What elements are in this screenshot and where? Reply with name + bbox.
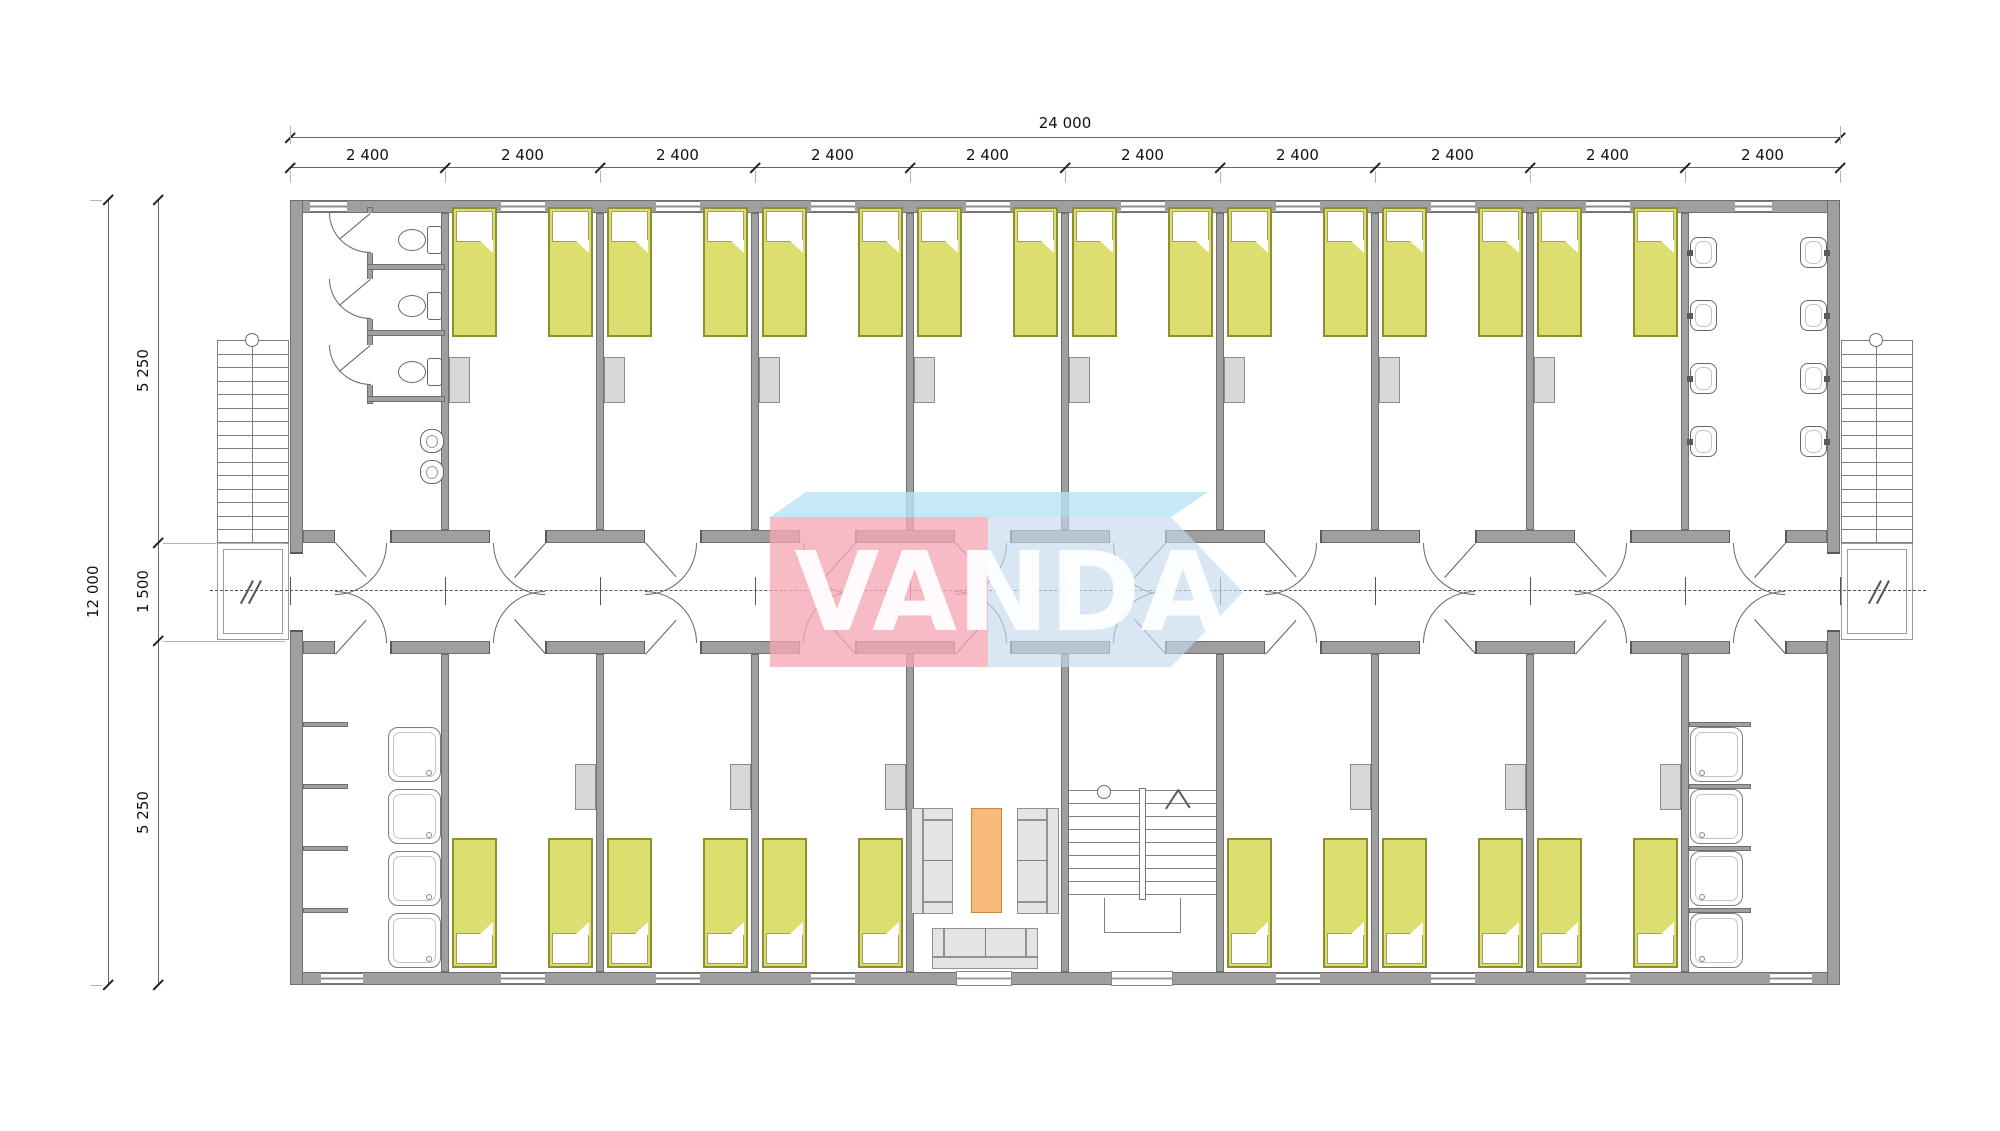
wall-interior-bottom bbox=[1371, 654, 1379, 972]
window bbox=[1735, 201, 1772, 212]
wardrobe bbox=[1224, 357, 1245, 403]
axis-tick bbox=[290, 577, 291, 605]
door-sill bbox=[290, 630, 303, 632]
bed-pillow bbox=[1327, 211, 1364, 242]
walk-line bbox=[1180, 898, 1181, 933]
wall-interior-bottom bbox=[1216, 654, 1224, 972]
sofa-arm bbox=[923, 808, 953, 820]
basin-tap bbox=[1824, 313, 1830, 319]
urinal-inner bbox=[426, 466, 438, 479]
bed-pillow bbox=[1482, 933, 1519, 964]
axis-tick bbox=[1840, 577, 1841, 605]
door-jamb bbox=[1419, 530, 1421, 543]
wall-interior-top bbox=[1061, 213, 1069, 530]
door-jamb bbox=[390, 641, 392, 654]
bed-pillow bbox=[456, 933, 493, 964]
window bbox=[310, 201, 347, 212]
wardrobe bbox=[1350, 764, 1371, 810]
exterior-stair bbox=[1841, 340, 1913, 543]
axis-tick bbox=[600, 577, 601, 605]
stair-step bbox=[218, 448, 288, 449]
dim-line bbox=[108, 200, 109, 985]
bed-pillow bbox=[766, 933, 803, 964]
wall-interior-top bbox=[1216, 213, 1224, 530]
window bbox=[811, 973, 855, 984]
wall-interior-bottom bbox=[1681, 654, 1689, 972]
wall-interior-bottom bbox=[441, 654, 449, 972]
wardrobe bbox=[575, 764, 596, 810]
door-jamb bbox=[1320, 530, 1322, 543]
door-sill bbox=[1827, 630, 1840, 632]
window bbox=[1586, 973, 1630, 984]
toilet-cistern bbox=[427, 292, 442, 320]
bed-pillow bbox=[1482, 211, 1519, 242]
door-arc bbox=[1423, 591, 1475, 643]
door-arc bbox=[329, 213, 371, 253]
stair-step bbox=[1842, 435, 1912, 436]
stair-step bbox=[1842, 354, 1912, 355]
dim-line bbox=[290, 137, 1840, 138]
dim-extension bbox=[290, 126, 291, 144]
dim-extension bbox=[1840, 126, 1841, 144]
door-arc bbox=[1733, 591, 1785, 643]
corridor-end-opening bbox=[1827, 554, 1840, 630]
urinal-inner bbox=[426, 435, 438, 448]
bed-pillow bbox=[1637, 211, 1674, 242]
sofa-arm bbox=[1017, 902, 1047, 914]
door-arc bbox=[329, 345, 371, 385]
door-jamb bbox=[334, 530, 336, 543]
stall-partition bbox=[367, 396, 445, 402]
stair-step bbox=[218, 408, 288, 409]
dim-label-module-width: 2 400 bbox=[910, 146, 1065, 162]
stair-step bbox=[1842, 381, 1912, 382]
dim-extension bbox=[1220, 171, 1221, 183]
dim-extension bbox=[755, 171, 756, 183]
bed-pillow bbox=[611, 933, 648, 964]
wardrobe bbox=[1379, 357, 1400, 403]
door-jamb bbox=[489, 530, 491, 543]
dim-label-module-width: 2 400 bbox=[1530, 146, 1685, 162]
wall-interior-bottom bbox=[1526, 654, 1534, 972]
sofa-arm bbox=[1017, 808, 1047, 820]
wall-interior-bottom bbox=[751, 654, 759, 972]
stair-step bbox=[1842, 367, 1912, 368]
dim-label-module-width: 2 400 bbox=[1685, 146, 1840, 162]
wall-interior-top bbox=[1526, 213, 1534, 530]
sofa-back bbox=[911, 808, 923, 914]
stair-up-arrow-line bbox=[1165, 790, 1178, 809]
sofa-cushions bbox=[1017, 820, 1047, 902]
door-jamb bbox=[1574, 530, 1576, 543]
tray-drain bbox=[426, 894, 432, 900]
stair-step bbox=[218, 462, 288, 463]
door-jamb bbox=[489, 641, 491, 654]
dim-label-depth-segment: 5 250 bbox=[134, 311, 152, 431]
basin-tap bbox=[1687, 439, 1693, 445]
toilet-cistern bbox=[427, 226, 442, 254]
door-opening bbox=[1265, 529, 1320, 544]
sofa-divider bbox=[923, 860, 953, 861]
stair-step bbox=[218, 529, 288, 530]
dim-label-depth-segment: 5 250 bbox=[134, 753, 152, 873]
window bbox=[1431, 201, 1475, 212]
floor-plan-canvas: 24 0002 4002 4002 4002 4002 4002 4002 40… bbox=[0, 0, 2000, 1131]
door-opening bbox=[1730, 529, 1785, 544]
stair-step bbox=[1842, 489, 1912, 490]
porch-inner bbox=[1847, 549, 1907, 634]
door-jamb bbox=[1785, 530, 1787, 543]
wall-interior-top bbox=[1371, 213, 1379, 530]
sofa-back bbox=[932, 957, 1038, 969]
logo-text: VANDA bbox=[775, 517, 1245, 667]
stair-step bbox=[218, 394, 288, 395]
dim-extension bbox=[163, 641, 285, 642]
stair-start-circle bbox=[245, 333, 259, 347]
door-arc bbox=[1575, 591, 1627, 643]
stair-step bbox=[1842, 502, 1912, 503]
wardrobe bbox=[885, 764, 906, 810]
wardrobe bbox=[1505, 764, 1526, 810]
stair-step bbox=[218, 367, 288, 368]
wardrobe bbox=[730, 764, 751, 810]
dim-extension bbox=[90, 200, 102, 201]
window bbox=[656, 973, 700, 984]
wardrobe bbox=[1660, 764, 1681, 810]
stair-step bbox=[218, 381, 288, 382]
dim-label-module-width: 2 400 bbox=[1375, 146, 1530, 162]
dim-label-module-width: 2 400 bbox=[1220, 146, 1375, 162]
dim-label-module-width: 2 400 bbox=[445, 146, 600, 162]
door-opening bbox=[335, 529, 390, 544]
stair-step bbox=[1842, 462, 1912, 463]
axis-tick bbox=[755, 577, 756, 605]
door-opening bbox=[490, 529, 545, 544]
dim-label-total-depth: 12 000 bbox=[84, 532, 102, 652]
dim-line bbox=[158, 200, 159, 985]
window bbox=[501, 201, 545, 212]
door-jamb bbox=[1264, 530, 1266, 543]
tray-drain bbox=[1699, 956, 1705, 962]
sofa-divider bbox=[1017, 860, 1047, 861]
walk-line bbox=[1104, 932, 1181, 933]
dim-extension bbox=[90, 985, 102, 986]
bed-pillow bbox=[1172, 211, 1209, 242]
basin-inner bbox=[1805, 241, 1822, 264]
walk-line bbox=[1104, 898, 1105, 933]
wall-interior-top bbox=[751, 213, 759, 530]
door-jamb bbox=[700, 641, 702, 654]
axis-tick bbox=[1530, 577, 1531, 605]
sofa-arm bbox=[932, 928, 944, 957]
bed-pillow bbox=[1386, 933, 1423, 964]
wall-interior-top bbox=[906, 213, 914, 530]
dim-label-module-width: 2 400 bbox=[755, 146, 910, 162]
bed-pillow bbox=[1231, 933, 1268, 964]
stair-step bbox=[218, 489, 288, 490]
door-opening bbox=[1575, 529, 1630, 544]
bed-pillow bbox=[611, 211, 648, 242]
door-jamb bbox=[1630, 530, 1632, 543]
dim-label-module-width: 2 400 bbox=[1065, 146, 1220, 162]
tray-drain bbox=[1699, 832, 1705, 838]
stall-partition bbox=[367, 264, 445, 270]
dim-label-total-width: 24 000 bbox=[965, 114, 1165, 132]
stair-start-circle bbox=[1097, 785, 1111, 799]
dim-label-module-width: 2 400 bbox=[290, 146, 445, 162]
basin-inner bbox=[1805, 367, 1822, 390]
wall-interior-top bbox=[1681, 213, 1689, 530]
bed-pillow bbox=[552, 211, 589, 242]
stair-up-arrow-line bbox=[1177, 789, 1190, 808]
sofa-arm bbox=[1026, 928, 1038, 957]
door-sill bbox=[1827, 552, 1840, 554]
dim-extension bbox=[1685, 171, 1686, 183]
wardrobe bbox=[449, 357, 470, 403]
stair-step bbox=[218, 435, 288, 436]
shower-partition bbox=[303, 846, 348, 851]
window bbox=[1431, 973, 1475, 984]
tray-drain bbox=[426, 770, 432, 776]
door-sill bbox=[290, 552, 303, 554]
door-arc bbox=[1265, 591, 1317, 643]
stair-step bbox=[1842, 475, 1912, 476]
window bbox=[656, 201, 700, 212]
basin-inner bbox=[1805, 430, 1822, 453]
axis-tick bbox=[445, 577, 446, 605]
shower-partition bbox=[303, 908, 348, 913]
tray-drain bbox=[426, 956, 432, 962]
basin-inner bbox=[1695, 304, 1712, 327]
toilet-cistern bbox=[427, 358, 442, 386]
dim-extension bbox=[1840, 171, 1841, 183]
shower-partition bbox=[303, 722, 348, 727]
bed-pillow bbox=[1327, 933, 1364, 964]
wardrobe bbox=[914, 357, 935, 403]
entrance-door-threshold bbox=[1111, 971, 1173, 986]
door-jamb bbox=[1419, 641, 1421, 654]
dim-extension bbox=[1375, 171, 1376, 183]
stair-step bbox=[1842, 529, 1912, 530]
wall-interior-top bbox=[596, 213, 604, 530]
window bbox=[321, 973, 363, 984]
dim-extension bbox=[910, 171, 911, 183]
basin-tap bbox=[1824, 376, 1830, 382]
bed-pillow bbox=[1386, 211, 1423, 242]
door-jamb bbox=[1729, 641, 1731, 654]
stair-step bbox=[218, 516, 288, 517]
window bbox=[501, 973, 545, 984]
basin-inner bbox=[1695, 241, 1712, 264]
tray-drain bbox=[1699, 894, 1705, 900]
toilet-bowl bbox=[398, 295, 426, 317]
axis-tick bbox=[1375, 577, 1376, 605]
dim-extension bbox=[600, 171, 601, 183]
stair-step bbox=[218, 421, 288, 422]
wardrobe bbox=[1534, 357, 1555, 403]
exterior-stair bbox=[217, 340, 289, 543]
wall-interior-bottom bbox=[1061, 654, 1069, 972]
door-opening bbox=[1420, 529, 1475, 544]
window bbox=[1121, 201, 1165, 212]
basin-tap bbox=[1824, 250, 1830, 256]
tray-drain bbox=[1699, 770, 1705, 776]
dim-label-depth-segment: 1 500 bbox=[134, 532, 152, 652]
tray-drain bbox=[426, 832, 432, 838]
dim-extension bbox=[1530, 171, 1531, 183]
bed-pillow bbox=[862, 211, 899, 242]
bed-pillow bbox=[707, 211, 744, 242]
entrance-door-threshold bbox=[956, 971, 1012, 986]
stair-step bbox=[1842, 516, 1912, 517]
stair-step bbox=[1842, 421, 1912, 422]
corridor-end-opening bbox=[290, 554, 303, 630]
stair-start-circle bbox=[1869, 333, 1883, 347]
door-jamb bbox=[644, 530, 646, 543]
shower-partition bbox=[303, 784, 348, 789]
door-opening bbox=[645, 529, 700, 544]
door-arc bbox=[335, 591, 387, 643]
door-arc bbox=[329, 279, 371, 319]
window bbox=[966, 201, 1010, 212]
stair-rail bbox=[1876, 341, 1877, 542]
bed-pillow bbox=[921, 211, 958, 242]
axis-tick bbox=[1685, 577, 1686, 605]
stall-partition bbox=[367, 330, 445, 336]
bed-pillow bbox=[766, 211, 803, 242]
window bbox=[1276, 973, 1320, 984]
sofa-cushions bbox=[923, 820, 953, 902]
stair-step bbox=[1842, 408, 1912, 409]
door-jamb bbox=[1320, 641, 1322, 654]
door-arc bbox=[645, 591, 697, 643]
bed-pillow bbox=[1541, 933, 1578, 964]
dim-extension bbox=[445, 171, 446, 183]
sofa-arm bbox=[923, 902, 953, 914]
coffee-table bbox=[971, 808, 1002, 913]
stair-step bbox=[218, 354, 288, 355]
bed-pillow bbox=[552, 933, 589, 964]
door-jamb bbox=[1729, 530, 1731, 543]
window bbox=[1276, 201, 1320, 212]
bed-pillow bbox=[862, 933, 899, 964]
stair-stringer bbox=[1139, 788, 1146, 900]
bed-pillow bbox=[456, 211, 493, 242]
basin-tap bbox=[1824, 439, 1830, 445]
bed-pillow bbox=[707, 933, 744, 964]
bed-pillow bbox=[1637, 933, 1674, 964]
dim-extension bbox=[1065, 171, 1066, 183]
bed-pillow bbox=[1076, 211, 1113, 242]
stair-step bbox=[218, 502, 288, 503]
dim-extension bbox=[290, 171, 291, 183]
wall-interior-bottom bbox=[596, 654, 604, 972]
toilet-bowl bbox=[398, 361, 426, 383]
door-jamb bbox=[1630, 641, 1632, 654]
door-jamb bbox=[700, 530, 702, 543]
dim-label-module-width: 2 400 bbox=[600, 146, 755, 162]
bed-pillow bbox=[1541, 211, 1578, 242]
door-jamb bbox=[1475, 530, 1477, 543]
basin-tap bbox=[1687, 313, 1693, 319]
basin-tap bbox=[1687, 376, 1693, 382]
wardrobe bbox=[759, 357, 780, 403]
stair-rail bbox=[252, 341, 253, 542]
dim-extension bbox=[163, 543, 285, 544]
stair-step bbox=[218, 475, 288, 476]
wardrobe bbox=[1069, 357, 1090, 403]
wardrobe bbox=[604, 357, 625, 403]
window bbox=[811, 201, 855, 212]
logo-watermark: VANDA bbox=[770, 485, 1250, 675]
sofa-divider bbox=[985, 928, 986, 957]
basin-tap bbox=[1687, 250, 1693, 256]
stair-step bbox=[1842, 394, 1912, 395]
window bbox=[1586, 201, 1630, 212]
door-jamb bbox=[545, 530, 547, 543]
window bbox=[1770, 973, 1812, 984]
bed-pillow bbox=[1231, 211, 1268, 242]
bed-pillow bbox=[1017, 211, 1054, 242]
door-arc bbox=[493, 591, 545, 643]
wall-interior-top bbox=[441, 213, 449, 530]
sofa-back bbox=[1047, 808, 1059, 914]
basin-inner bbox=[1695, 367, 1712, 390]
basin-inner bbox=[1695, 430, 1712, 453]
door-jamb bbox=[390, 530, 392, 543]
stair-step bbox=[1842, 448, 1912, 449]
toilet-bowl bbox=[398, 229, 426, 251]
basin-inner bbox=[1805, 304, 1822, 327]
